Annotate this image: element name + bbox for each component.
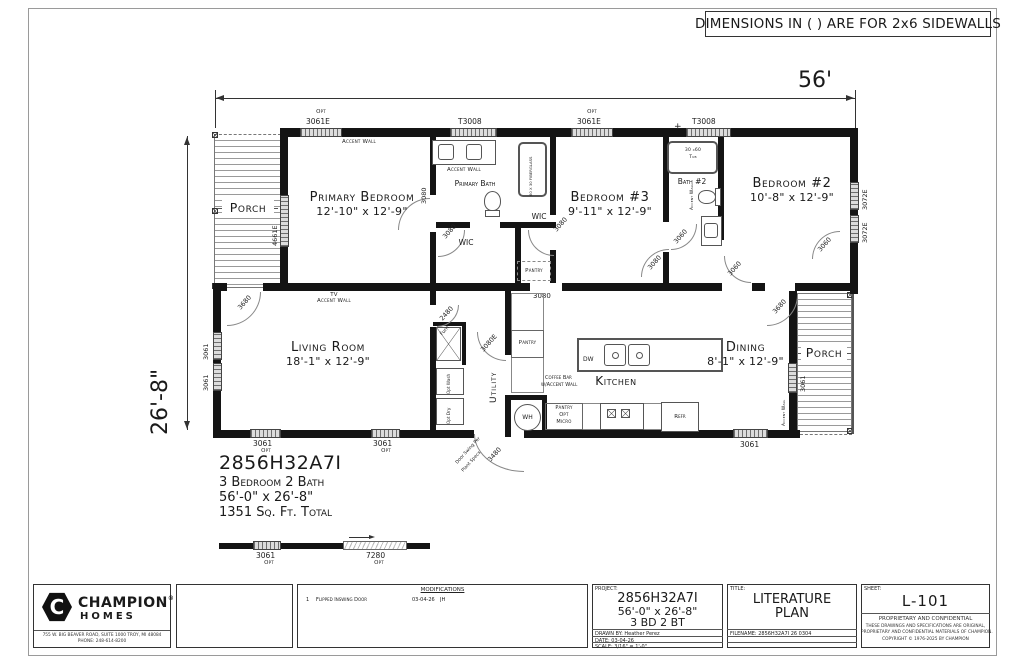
legal-line: THESE DRAWINGS AND SPECIFICATIONS ARE OR… [861,624,990,629]
window [250,429,281,438]
company-name: CHAMPION® [78,595,174,611]
toilet [484,191,501,211]
porch-right-edge [852,294,854,434]
pantry-label: Pantry [512,340,543,346]
window-code: 3061 [202,332,210,360]
window-code: 3061 [740,440,759,449]
water-heater: WH [514,404,541,431]
wall-left-lower [213,283,221,437]
water-heater-label: WH [522,414,532,421]
window [850,215,859,243]
project-row-divider [592,636,723,637]
plan-config: 3 Bedroom 2 Bath [219,475,324,490]
window-code: 3072E [861,215,869,243]
wall-mid [215,283,227,291]
window [280,195,289,247]
refrigerator-label: Refr [674,414,685,420]
floor-plan-sheet: DIMENSIONS IN ( ) ARE FOR 2x6 SIDEWALLS … [0,0,1024,663]
window-code: T3008 [692,117,716,126]
window-code: 3061E [306,117,330,126]
opt-window [253,541,281,550]
wall-int [505,395,547,400]
wall-int [430,289,436,305]
primary-bedroom-label: Primary Bedroom [292,190,432,205]
opt-slider-door [343,541,407,550]
wall-top [281,128,858,137]
sink [438,144,454,160]
wall-mid [752,283,765,291]
window-code: 4661E [271,196,279,246]
wall-furn [462,322,466,365]
registered-mark: ® [168,595,175,602]
sheet-title-line1: LITERATURE [727,592,857,607]
wall-mid [562,283,722,291]
wall-mid [795,283,852,291]
toilet-tank [715,188,721,206]
window-note: Opt [572,109,612,115]
window-code: T3008 [458,117,482,126]
project-config: 3 BD 2 BT [592,616,723,629]
window-code: 3061E [577,117,601,126]
window-note: Opt [374,448,398,454]
dishwasher-label: DW [583,356,594,363]
bathtub-label: Tub [675,155,711,160]
dim-line-left [187,136,188,430]
window [450,128,497,137]
refrigerator: Refr [661,402,699,432]
project-row-divider [592,629,723,630]
sheet-title-line2: PLAN [727,606,857,621]
dining-label: Dining [698,340,793,355]
modification-row-num: 1 [306,597,309,603]
company-divider [34,630,170,631]
sink-drain [636,352,643,359]
accent-wall-note: Accent Wall [434,167,494,173]
burner [621,409,630,418]
toilet [698,190,716,204]
dim-depth-label: 26'-8" [148,315,173,435]
wall-int [505,398,511,437]
coffee-bar-note: w/Accent Wall [541,382,577,388]
opt-wall [219,543,253,549]
opt-wall [407,543,430,549]
sheet-number: L-101 [861,592,990,610]
bedroom3-size: 9'-11" x 12'-9" [545,205,675,218]
modification-row-by: JH [440,597,445,603]
bedroom2-label: Bedroom #2 [727,176,857,191]
coffee-bar-note: Coffee Bar [545,375,572,381]
dim-arrow-down-icon [184,421,190,429]
dim-arrow-left-icon [216,95,224,101]
opt-slider-track [349,537,371,538]
living-room-size: 18'-1" x 12'-9" [258,355,398,368]
hose-bib-symbol: + [674,122,682,132]
porch-right-label: Porch [801,345,847,360]
wall-mid [263,283,530,291]
window-code: 3061 [799,364,807,392]
washer-label: Opt Wash [446,369,451,394]
bathtub-label: 60 X 30 FIBERGLASS [528,144,533,196]
pantry-opt-micro: Opt [546,412,582,418]
title-row-divider [727,629,857,630]
kitchen-label: Kitchen [584,374,648,388]
pantry-opt-micro: Pantry [546,405,582,411]
bathtub-label: 30 x60 [675,148,711,153]
porch-left-label: Porch [222,200,274,215]
opt-door-note: Opt [367,560,391,566]
wall-int [500,222,556,228]
modification-row-date: 03-04-26 [412,597,435,603]
porch-post [212,132,218,138]
dim-arrow-right-icon [846,95,854,101]
accent-wall-note: Accent Wall [690,180,695,214]
window-note: Opt [301,109,341,115]
accent-wall-note: Accent Wall [782,396,787,430]
legal-line: COPYRIGHT © 1976-2025 BY CHAMPION [861,637,990,642]
opt-wall [281,543,343,549]
window-code: 3061 [253,439,272,448]
window-code: 3061 [373,439,392,448]
burner [607,409,616,418]
legal-header: PROPRIETARY AND CONFIDENTIAL [861,616,990,622]
window [213,332,222,360]
window [213,363,222,391]
plan-model: 2856H32A7I [219,452,342,474]
sink-drain [612,352,619,359]
bedroom3-label: Bedroom #3 [545,190,675,205]
window [571,128,613,137]
dim-arrow-up-icon [184,137,190,145]
window-code: 3061 [202,363,210,391]
title-row-divider [727,642,857,643]
opt-slider-arrow-icon [369,535,375,539]
living-room-label: Living Room [258,340,398,355]
company-sub: HOMES [80,611,136,622]
sheet-divider [861,613,990,614]
scale-row: SCALE: 3/16" = 1'-0" [595,644,647,650]
toilet-tank [485,210,500,217]
sidewall-note-box: DIMENSIONS IN ( ) ARE FOR 2x6 SIDEWALLS [705,11,991,37]
window [686,128,731,137]
sidewall-note-text: DIMENSIONS IN ( ) ARE FOR 2x6 SIDEWALLS [695,16,1001,32]
accent-wall-note: Accent Wall [338,139,380,145]
dim-ext-top-right [855,90,856,128]
dryer-label: Opt Dry [446,399,451,424]
project-model: 2856H32A7I [592,591,723,606]
plan-area: 1351 Sq. Ft. Total [219,505,332,520]
opt-window-code: 3061 [256,551,275,560]
primary-bedroom-size: 12'-10" x 12'-9" [292,205,432,218]
primary-bath-label: Primary Bath [438,179,512,188]
dim-line-top [216,98,855,99]
opt-window-note: Opt [257,560,281,566]
dining-size: 8'-1" x 12'-9" [698,355,793,368]
accent-wall-note: Accent Wall [313,298,355,304]
bedroom2-size: 10'-8" x 12'-9" [727,191,857,204]
company-address: 755 W. BIG BEAVER ROAD, SUITE 1000 TROY,… [34,633,170,638]
modification-row-desc: Flipped Inswing Door [316,597,367,603]
legal-line: PROPRIETARY AND CONFIDENTIAL MATERIALS O… [861,630,990,635]
window-code: 3072E [861,182,869,210]
window [371,429,400,438]
sink [704,223,718,238]
titleblock-spare-cell [176,584,293,648]
window [733,429,768,438]
sink [466,144,482,160]
porch-right-area [797,293,852,432]
dim-width-label: 56' [795,68,835,93]
utility-label: Utility [489,355,499,403]
porch-bottom-edge [800,434,852,435]
title-row-divider [727,636,857,637]
company-name-text: CHAMPION [78,595,168,611]
titleblock-modifications-cell [297,584,588,648]
window [300,128,342,137]
modifications-header: MODIFICATIONS [297,587,588,593]
project-row-divider [592,642,723,643]
company-phone: PHONE: 248-614-8200 [34,639,170,644]
wall-dining-porch-b [789,393,797,438]
opt-door-code: 7280 [366,551,385,560]
wall-right [850,128,858,294]
wic-label: WIC [448,238,484,247]
wall-int [430,232,436,283]
plan-size: 56'-0" x 26'-8" [219,490,313,505]
pantry-label: Pantry [518,268,550,274]
pantry-opt-micro: Micro [546,419,582,425]
